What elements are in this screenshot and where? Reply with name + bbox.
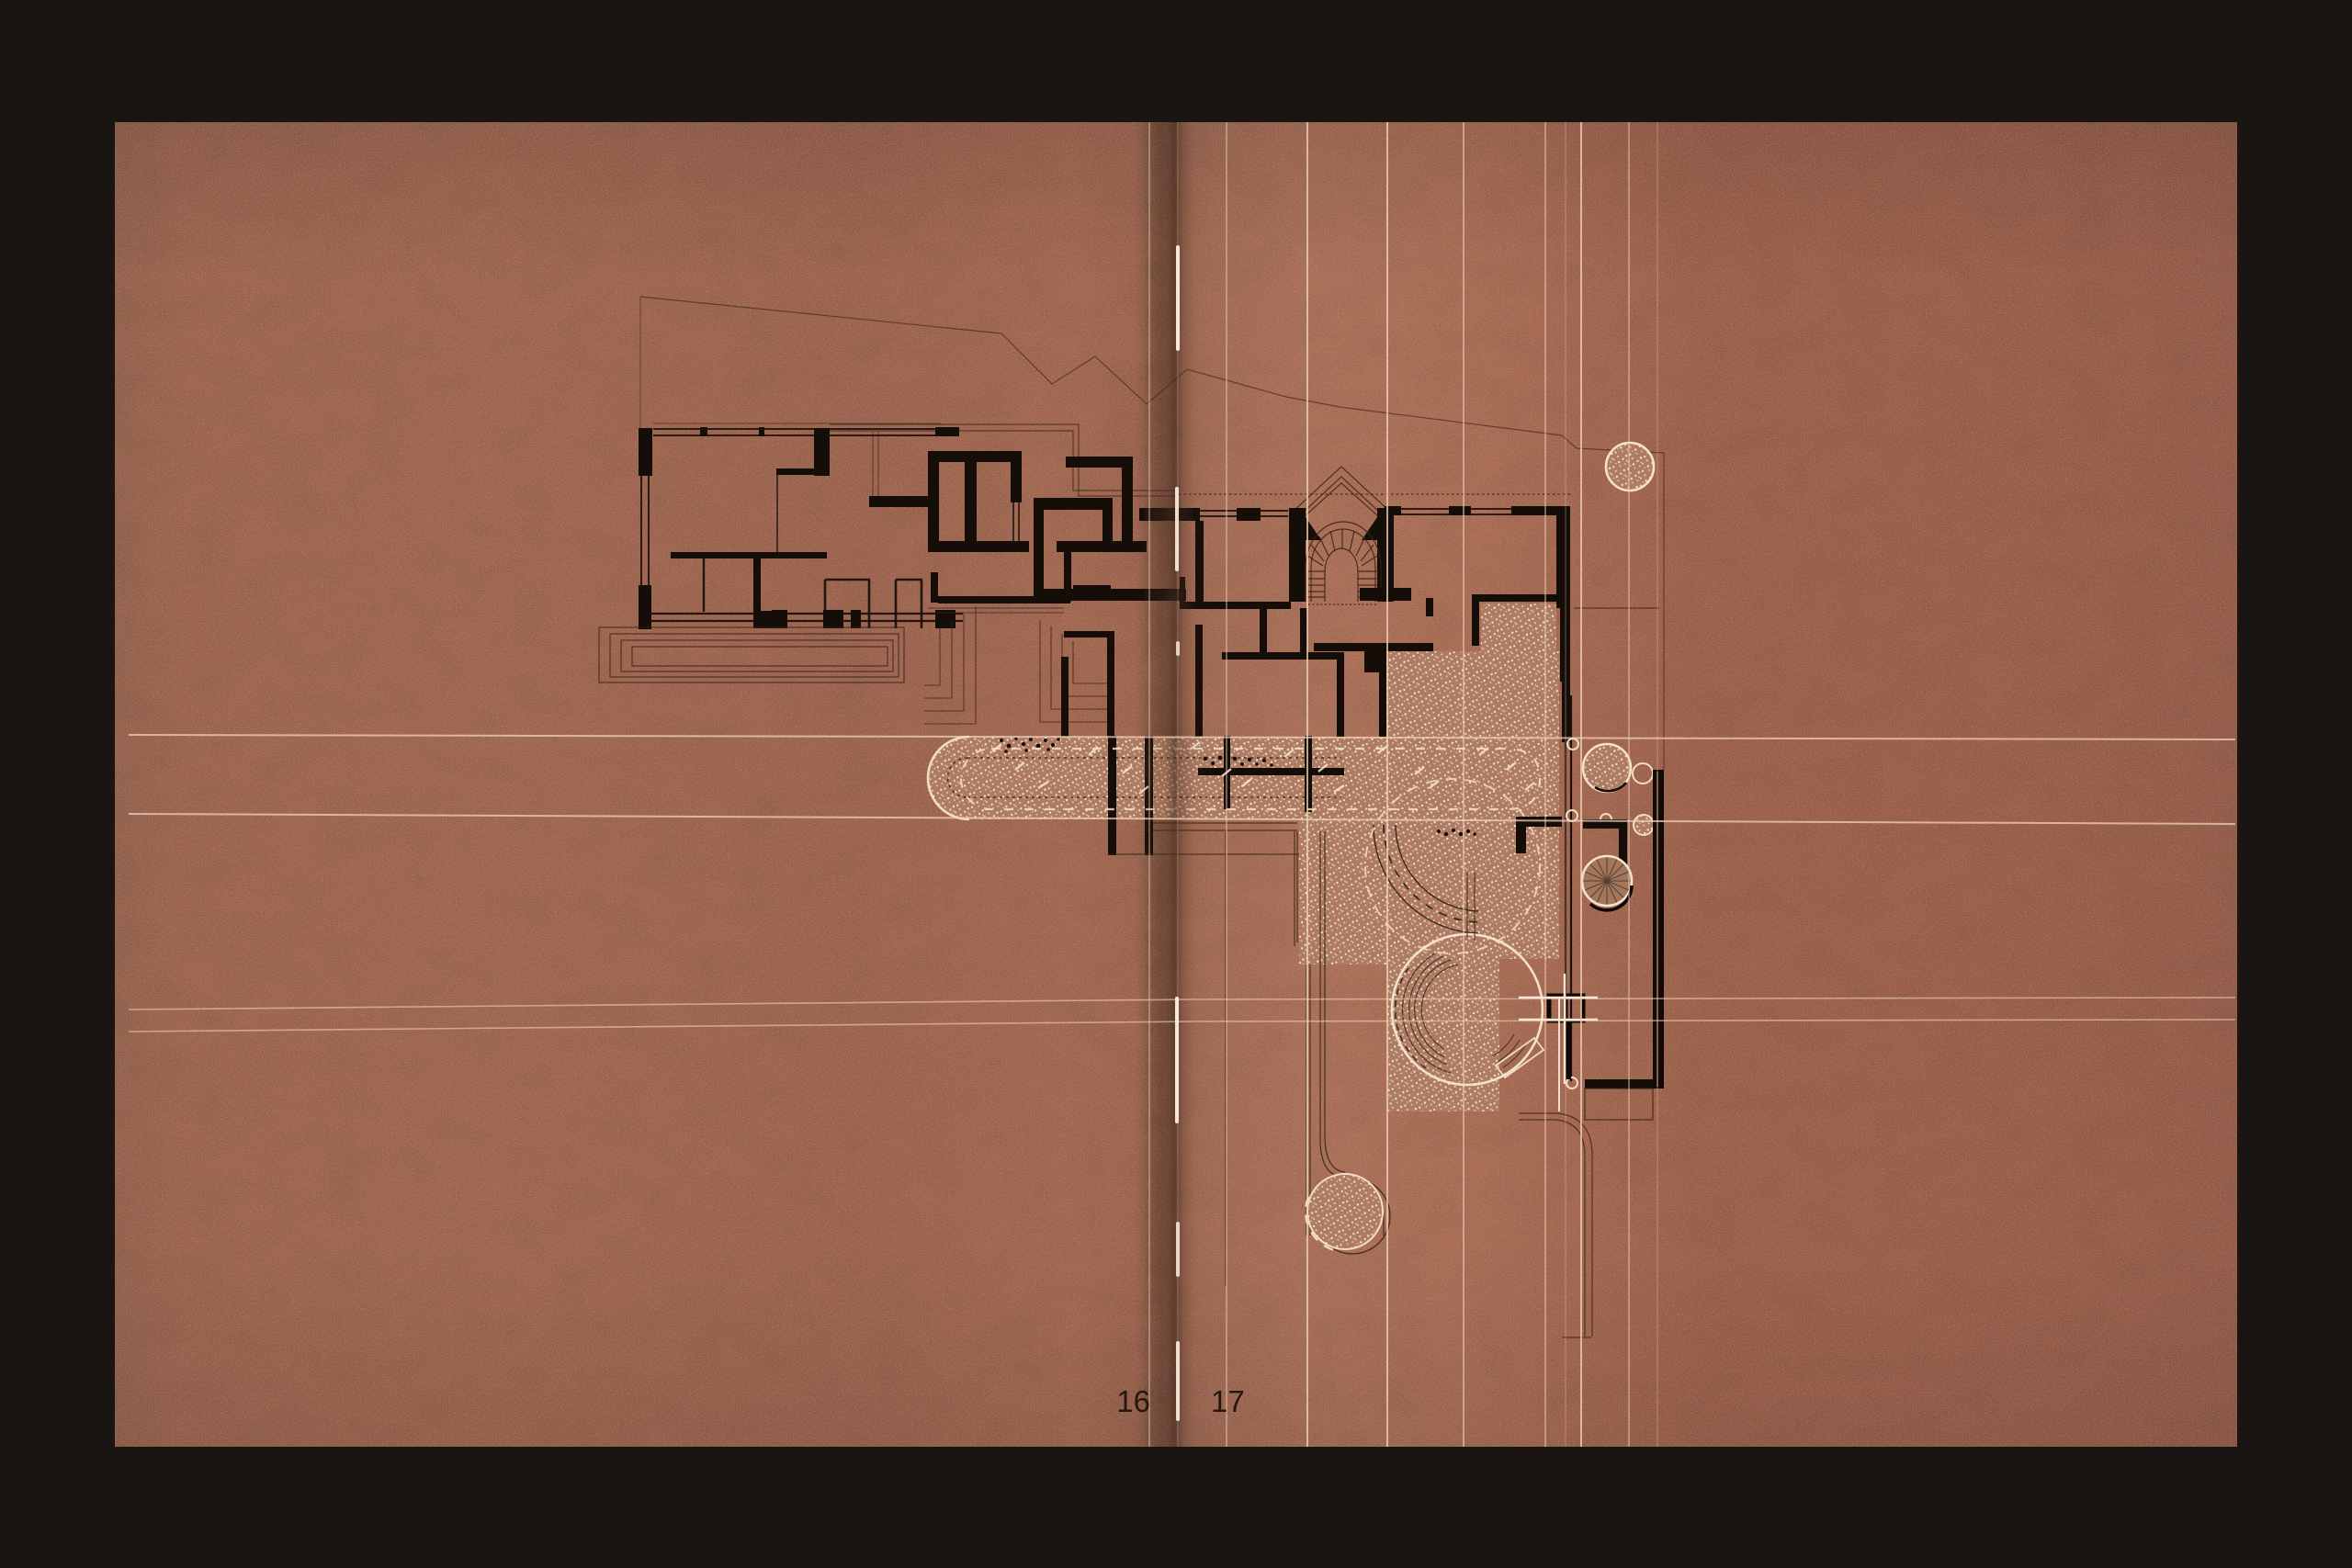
svg-text:16: 16 <box>1116 1384 1150 1418</box>
svg-text:17: 17 <box>1211 1384 1245 1418</box>
